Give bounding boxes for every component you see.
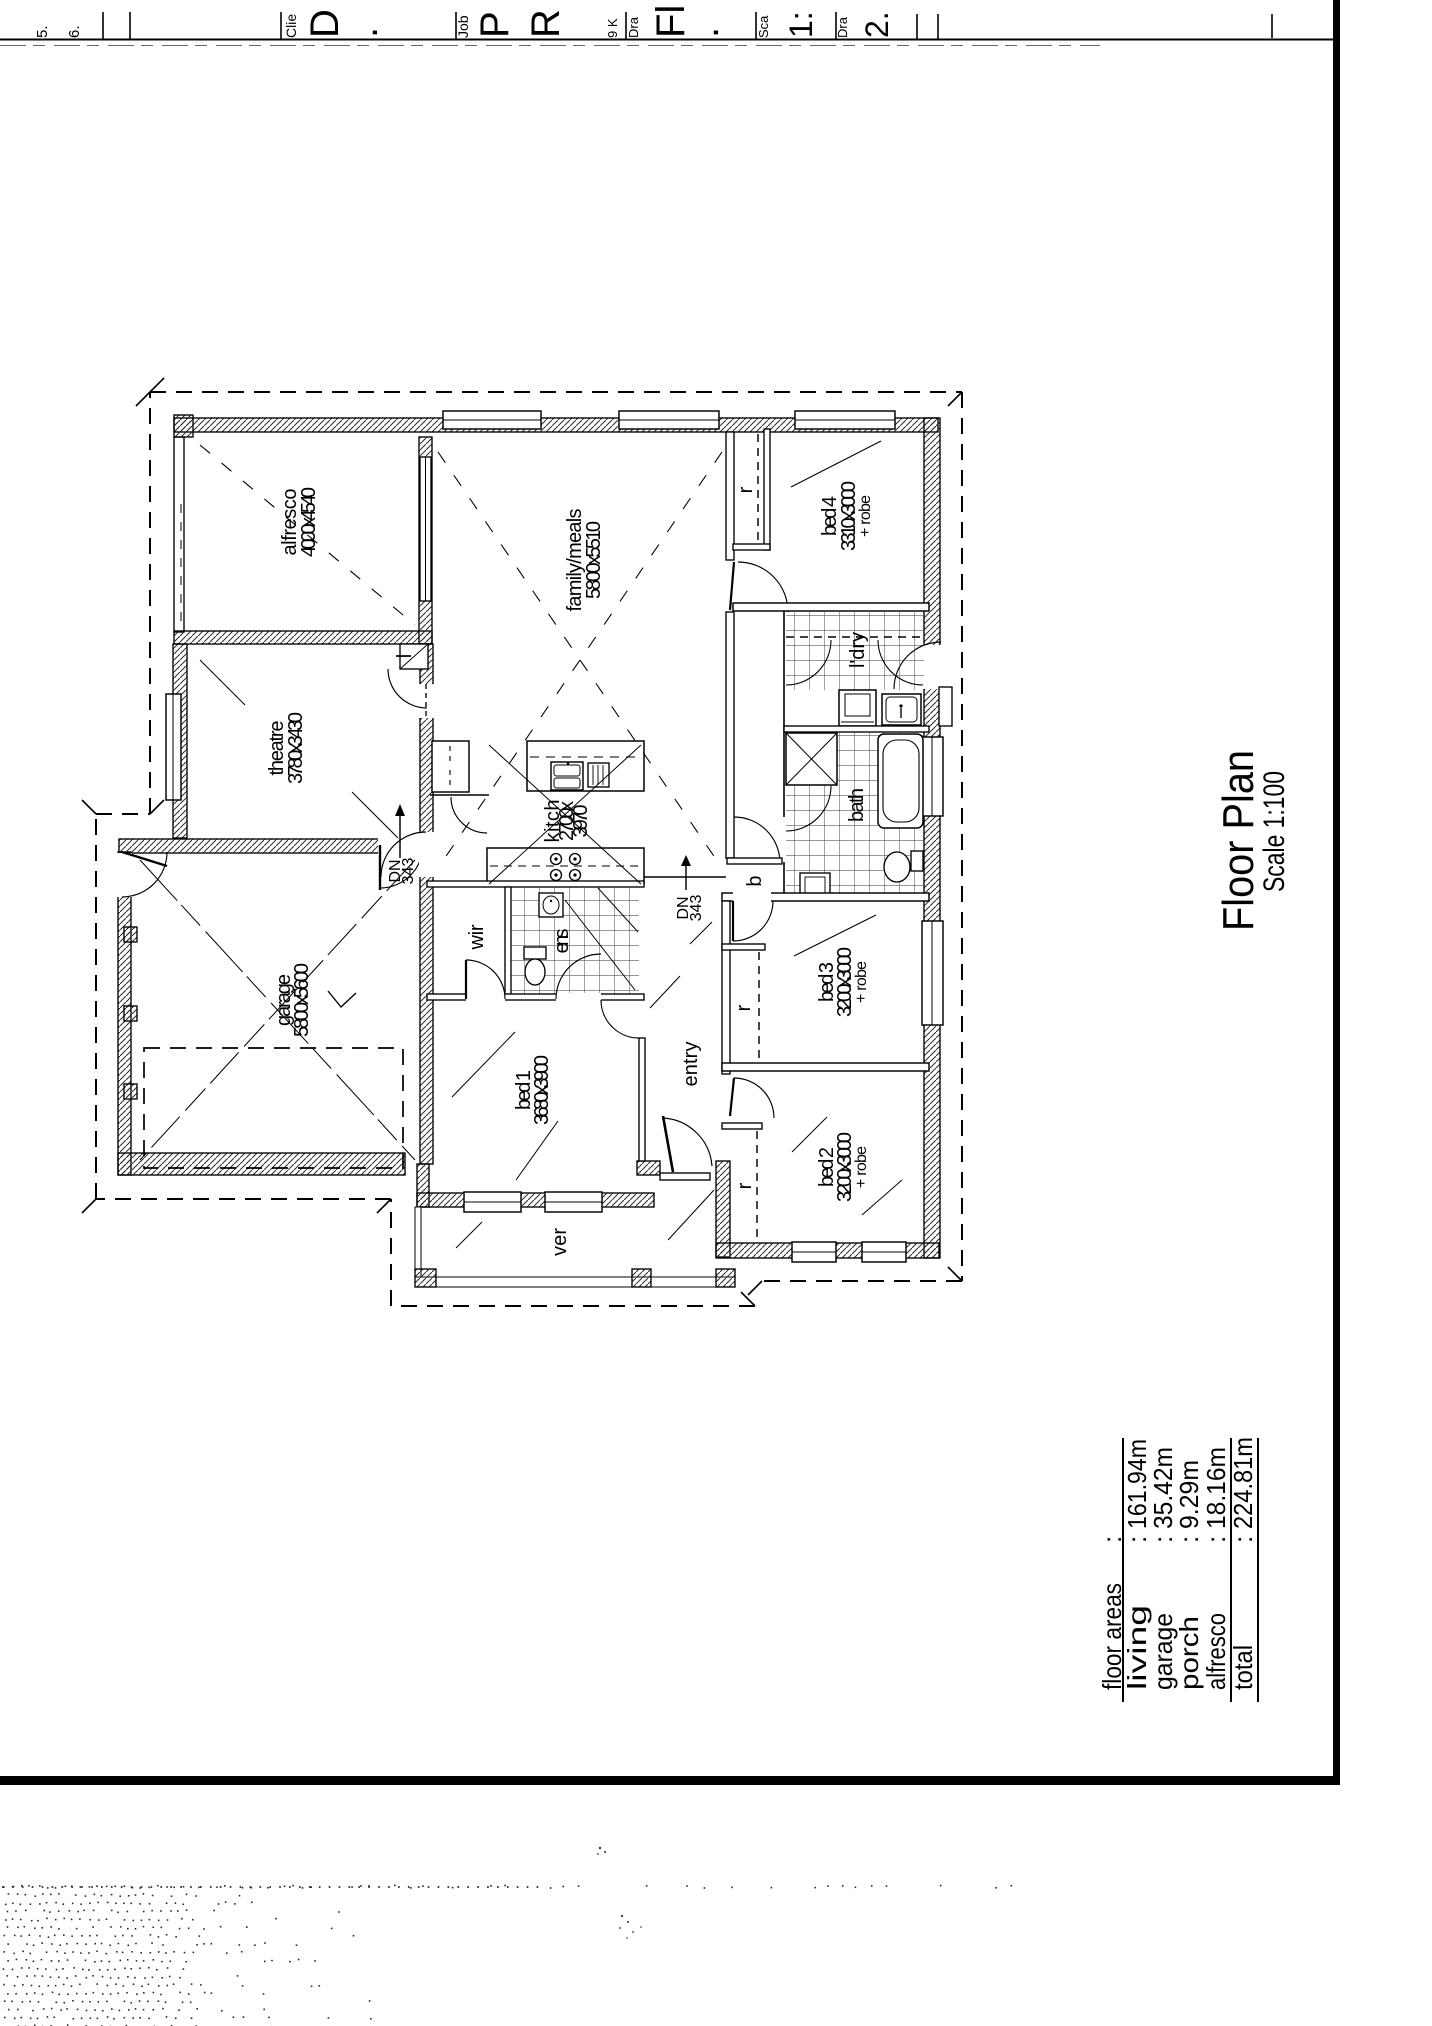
svg-text:b: b	[744, 875, 766, 886]
svg-text:ver: ver	[549, 1228, 571, 1256]
svg-text:porch: porch	[1174, 1616, 1204, 1690]
svg-text:9 K: 9 K	[605, 18, 620, 38]
svg-text:entry: entry	[680, 1042, 702, 1087]
svg-text:3970: 3970	[570, 805, 592, 838]
svg-text:Sca: Sca	[756, 15, 771, 38]
svg-text:r: r	[735, 486, 757, 493]
svg-text:+ robe: + robe	[853, 1146, 870, 1188]
svg-text::: :	[1201, 1536, 1231, 1543]
svg-text::: :	[1228, 1536, 1258, 1543]
svg-text:5800x5510: 5800x5510	[583, 521, 605, 599]
svg-text:3780x3430: 3780x3430	[285, 712, 307, 784]
svg-text:2.: 2.	[859, 11, 895, 38]
svg-text:r: r	[734, 1182, 756, 1189]
svg-text:total: total	[1228, 1645, 1258, 1690]
svg-text:Floor Plan: Floor Plan	[1214, 750, 1263, 931]
svg-text:Job: Job	[455, 15, 471, 38]
svg-text:+ robe: + robe	[853, 961, 870, 1003]
svg-text:18.16m: 18.16m	[1201, 1447, 1231, 1529]
svg-text:343: 343	[688, 895, 705, 922]
svg-text:.: .	[683, 27, 727, 38]
svg-text:R: R	[524, 9, 568, 38]
svg-text:bath: bath	[846, 788, 868, 822]
svg-text:wir: wir	[466, 924, 488, 950]
svg-text:5.: 5.	[34, 25, 51, 38]
svg-text:r: r	[733, 1004, 755, 1011]
svg-text:6.: 6.	[66, 25, 83, 38]
svg-text:l: l	[394, 654, 416, 658]
svg-text:P: P	[473, 11, 517, 38]
svg-text:ens: ens	[551, 929, 573, 954]
svg-text:D: D	[303, 9, 347, 38]
svg-text:343: 343	[400, 858, 417, 885]
svg-text:5800x5600: 5800x5600	[291, 963, 313, 1037]
svg-text:224.81m: 224.81m	[1228, 1437, 1258, 1529]
svg-text:Scale 1:100: Scale 1:100	[1258, 771, 1291, 892]
svg-text:l'dry: l'dry	[847, 632, 869, 668]
svg-text:1:: 1:	[783, 11, 819, 38]
svg-text:.: .	[342, 27, 386, 38]
svg-text:alfresco: alfresco	[1201, 1613, 1231, 1690]
svg-text:Dra: Dra	[835, 16, 850, 38]
svg-text:Clie: Clie	[283, 14, 299, 38]
svg-text:Dra: Dra	[626, 16, 641, 38]
svg-text:4000x4540: 4000x4540	[298, 487, 320, 557]
svg-text::: :	[1174, 1536, 1204, 1543]
svg-text:3680x3900: 3680x3900	[531, 1055, 553, 1125]
svg-text:+ robe: + robe	[857, 495, 874, 537]
svg-text:9.29m: 9.29m	[1174, 1460, 1204, 1529]
